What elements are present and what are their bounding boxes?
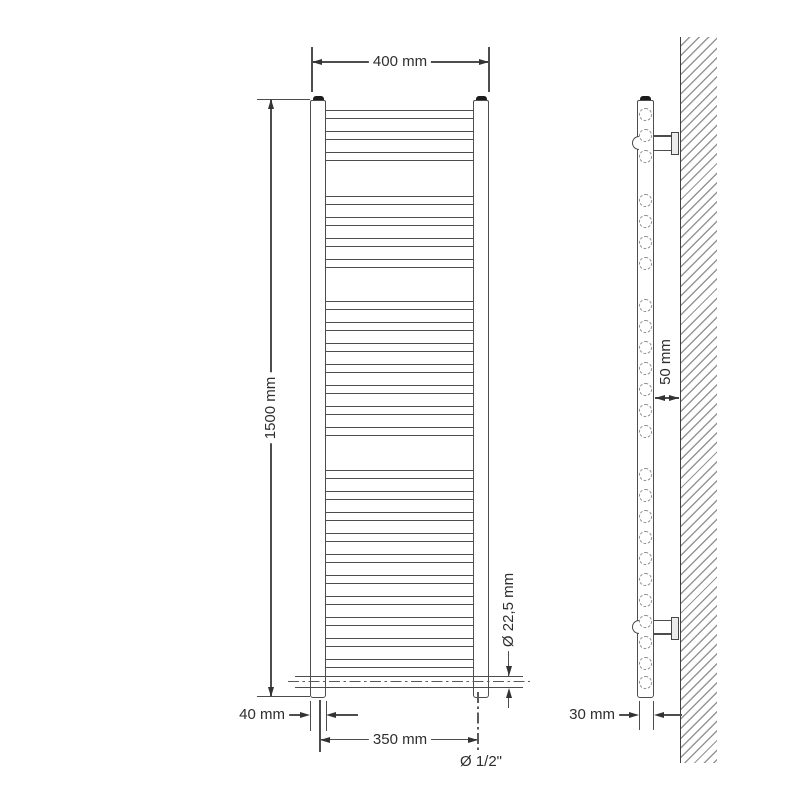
dim-line-diameter-lower (508, 697, 509, 708)
arrow-right-icon (479, 59, 489, 65)
towel-rail-rung (326, 385, 474, 394)
arrow-left-icon (654, 712, 664, 718)
dim-width-label: 400 mm (369, 53, 431, 71)
dim-connection-spacing-label: 350 mm (369, 731, 431, 749)
connection-center-line (477, 692, 478, 756)
towel-rail-rung (326, 638, 474, 647)
side-collector-tube (637, 100, 654, 698)
bottom-bracket-arm-upper (654, 620, 672, 621)
top-bracket-wall-plate (671, 132, 679, 155)
towel-rail-rung (326, 364, 474, 373)
towel-rail-rung (326, 427, 474, 436)
dim-connection-thread-label: Ø 1/2" (456, 753, 506, 771)
tail-30-right (663, 714, 682, 715)
towel-rail-rung (326, 575, 474, 584)
towel-rail-rung (326, 554, 474, 563)
arrow-left-icon (326, 712, 336, 718)
top-bracket-clamp (632, 136, 639, 151)
ext-line-350-left (319, 700, 320, 752)
arrow-left-icon (312, 59, 322, 65)
towel-rail-rung (326, 533, 474, 542)
ext-line-width-left (311, 47, 312, 92)
towel-rail-rung (326, 659, 474, 668)
towel-rail-rung (326, 238, 474, 247)
towel-rail-rung (326, 131, 474, 140)
towel-rail-rung (326, 196, 474, 205)
radiator-technical-drawing: 400 mm 1500 mm 40 mm 350 mm (0, 0, 800, 800)
towel-rail-rung (326, 617, 474, 626)
bottom-bracket-arm-lower (654, 633, 672, 634)
arrow-right-icon (300, 712, 310, 718)
arrow-right-icon (629, 712, 639, 718)
towel-rail-rung (326, 217, 474, 226)
top-bracket-arm-lower (654, 150, 672, 151)
wall (680, 37, 717, 763)
dim-collector-width-label: 40 mm (235, 706, 289, 724)
towel-rail-rung (326, 301, 474, 310)
towel-rail-rung (326, 406, 474, 415)
arrow-up-icon (506, 688, 512, 698)
towel-rail-rung (326, 470, 474, 479)
arrow-left-icon (320, 737, 330, 743)
ext-line-width-right (488, 47, 489, 92)
hidden-rung-end-circle (639, 676, 652, 689)
bottom-bracket-clamp (632, 620, 639, 634)
towel-rail-rung (326, 322, 474, 331)
arrow-right-icon (468, 737, 478, 743)
towel-rail-rung (326, 152, 474, 161)
arrow-up-icon (268, 99, 274, 109)
cross-tube-center-line (288, 681, 530, 682)
dim-tube-depth-label: 30 mm (565, 706, 619, 724)
ext-line-height-bottom (257, 696, 310, 697)
towel-rail-rung (326, 596, 474, 605)
left-collector-tube (310, 100, 327, 698)
right-collector-tube (473, 100, 490, 698)
bottom-bracket-wall-plate (671, 617, 679, 640)
towel-rail-rung (326, 259, 474, 268)
arrow-down-icon (268, 687, 274, 697)
top-bracket-arm-upper (654, 135, 672, 136)
towel-rail-rung (326, 343, 474, 352)
arrow-right-icon (669, 395, 679, 401)
tail-40-right (335, 714, 358, 715)
ext-line-height-top (257, 99, 310, 100)
towel-rail-rung (326, 491, 474, 500)
dim-wall-clearance-label: 50 mm (657, 335, 675, 389)
towel-rail-rung (326, 512, 474, 521)
dim-tube-diameter-label: Ø 22,5 mm (500, 569, 518, 651)
dim-height-label: 1500 mm (262, 373, 280, 444)
arrow-down-icon (506, 666, 512, 676)
arrow-left-icon (655, 395, 665, 401)
towel-rail-rung (326, 110, 474, 119)
